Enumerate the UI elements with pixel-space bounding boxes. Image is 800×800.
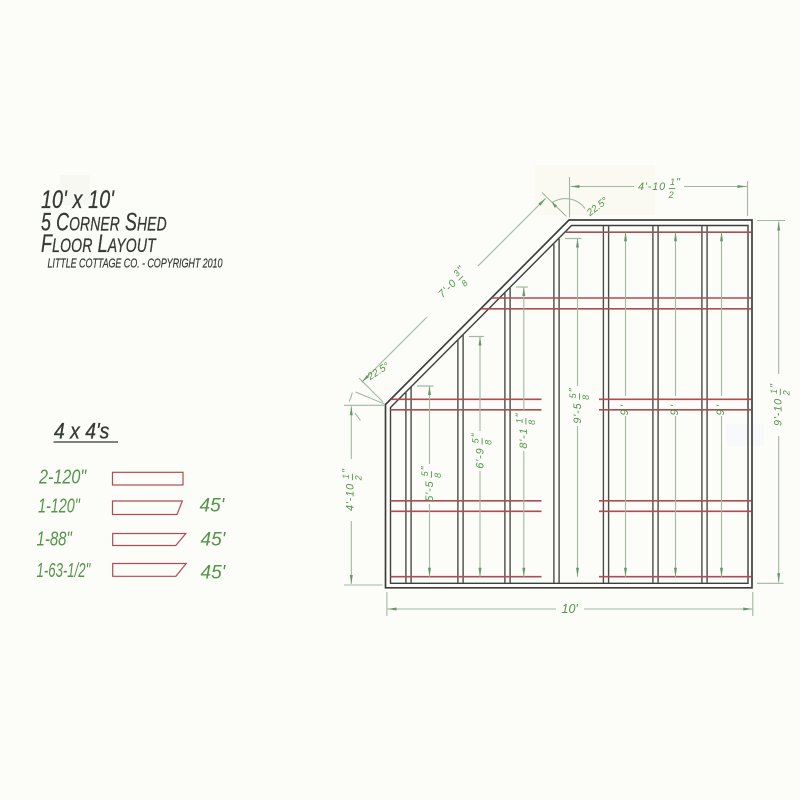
svg-text:4'-10: 4'-10 [638,181,666,193]
svg-text:9': 9' [669,402,681,415]
svg-text:1-120": 1-120" [38,494,81,517]
svg-text:8: 8 [433,473,443,478]
svg-text:": " [768,383,780,388]
svg-text:6'-9: 6'-9 [474,448,486,469]
svg-text:4'-10: 4'-10 [345,483,357,511]
svg-text:1-63-1/2": 1-63-1/2" [37,559,92,581]
svg-text:2-120": 2-120" [38,466,87,488]
svg-text:8: 8 [483,440,493,445]
svg-text:": " [568,387,580,392]
svg-text:LITTLE COTTAGE CO. - COPYRIGHT: LITTLE COTTAGE CO. - COPYRIGHT 2010 [48,257,224,271]
svg-text:": " [420,465,432,470]
svg-text:1: 1 [515,418,525,423]
svg-text:8: 8 [527,420,537,425]
svg-text:4 x 4's: 4 x 4's [54,419,109,443]
svg-text:22.5°: 22.5° [365,361,392,384]
svg-text:8'-1: 8'-1 [518,428,530,449]
svg-text:": " [470,432,482,437]
svg-text:1: 1 [769,389,779,394]
svg-text:9'-5: 9'-5 [572,402,584,423]
svg-text:5: 5 [420,470,430,476]
svg-text:45': 45' [201,563,227,584]
svg-text:7'-0: 7'-0 [436,277,459,300]
svg-text:45': 45' [201,530,227,551]
svg-text:": " [514,412,526,417]
svg-text:1: 1 [341,474,351,479]
svg-text:5'-5: 5'-5 [424,480,436,501]
svg-text:8: 8 [459,278,470,289]
svg-text:": " [676,177,681,189]
svg-text:": " [341,468,353,473]
svg-text:2: 2 [668,190,674,200]
svg-text:5: 5 [568,392,578,398]
svg-text:2: 2 [782,390,792,396]
svg-text:9': 9' [715,402,727,415]
svg-text:9': 9' [619,402,631,415]
svg-text:5: 5 [471,437,481,443]
svg-text:9'-10: 9'-10 [773,398,785,426]
svg-text:8: 8 [581,395,591,400]
svg-text:45': 45' [200,496,226,517]
svg-text:1: 1 [670,177,675,187]
svg-text:10': 10' [562,602,579,616]
svg-text:2: 2 [354,475,364,481]
svg-text:1-88": 1-88" [37,527,73,550]
